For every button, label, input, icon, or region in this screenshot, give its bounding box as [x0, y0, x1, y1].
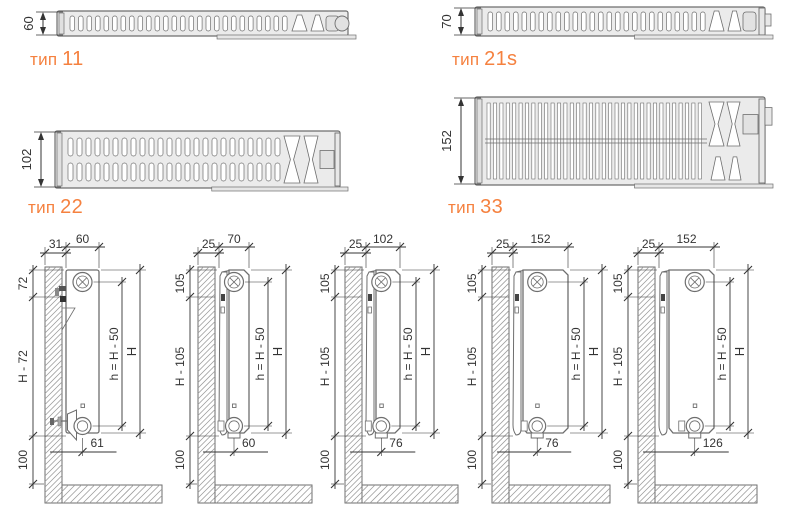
- section-label-11: тип 11: [30, 48, 84, 71]
- installation-diagram-5: 25152105H - 105100Hh = H - 50126: [611, 232, 757, 503]
- dim-label: H - 105: [465, 347, 479, 387]
- radiator-dimensions-figure: 6070102152316072H - 72100Hh = H - 506125…: [0, 0, 800, 506]
- dim-label: 25: [202, 237, 216, 251]
- dim-label: 152: [676, 232, 696, 246]
- dim-label: 72: [16, 277, 30, 291]
- dim-label: h = H - 50: [401, 327, 415, 380]
- dim-label: 100: [611, 450, 625, 470]
- technical-drawing: 6070102152316072H - 72100Hh = H - 506125…: [0, 0, 800, 506]
- dim-label: h = H - 50: [107, 327, 121, 380]
- type-number: 21s: [484, 48, 517, 70]
- dim-label: h = H - 50: [715, 327, 729, 380]
- dim-label: H - 72: [16, 350, 30, 383]
- dim-label: H: [270, 347, 285, 356]
- dim-label: 152: [530, 232, 550, 246]
- section-label-33: тип 33: [448, 196, 503, 219]
- section-label-21s: тип 21s: [452, 48, 517, 71]
- dim-label: 105: [173, 273, 187, 293]
- dim-label: 60: [242, 436, 256, 450]
- type-word: тип: [452, 50, 479, 69]
- dim-label: H: [586, 347, 601, 356]
- dim-label: 76: [389, 436, 403, 450]
- section-drawing-33: 152: [439, 97, 773, 188]
- installation-diagram-2: 2570105H - 105100Hh = H - 5060: [173, 232, 312, 503]
- floor: [509, 485, 610, 503]
- dim-label: 60: [21, 16, 36, 30]
- dim-label: H: [124, 347, 139, 356]
- section-drawing-22: 102: [19, 131, 348, 191]
- dim-label: 126: [703, 436, 723, 450]
- dim-label: 100: [16, 450, 30, 470]
- dim-label: 25: [642, 237, 656, 251]
- dim-label: 70: [227, 232, 241, 246]
- section-drawing-11: 60: [21, 11, 356, 39]
- dim-label: H - 105: [318, 347, 332, 387]
- dim-label: H - 105: [173, 347, 187, 387]
- type-number: 33: [480, 196, 503, 218]
- dim-label: 100: [173, 450, 187, 470]
- dim-label: 60: [76, 232, 90, 246]
- radiator-body: [66, 270, 99, 433]
- radiator-body: [229, 270, 249, 433]
- dim-label: 76: [545, 436, 559, 450]
- dim-label: H: [732, 347, 747, 356]
- type-word: тип: [28, 198, 55, 217]
- dim-label: 102: [19, 149, 34, 171]
- dim-label: 102: [373, 232, 393, 246]
- dim-label: 100: [318, 450, 332, 470]
- radiator-body: [376, 270, 400, 433]
- radiator-body: [669, 270, 714, 433]
- installation-diagram-4: 25152105H - 105100Hh = H - 5076: [465, 232, 610, 503]
- dim-label: h = H - 50: [569, 327, 583, 380]
- section-label-22: тип 22: [28, 196, 83, 219]
- dim-label: 31: [49, 237, 63, 251]
- dim-label: 25: [349, 237, 363, 251]
- dim-label: h = H - 50: [253, 327, 267, 380]
- dim-label: 152: [439, 130, 454, 152]
- section-drawing-21s: 70: [439, 7, 773, 39]
- dim-label: 105: [611, 273, 625, 293]
- dim-label: 61: [91, 436, 105, 450]
- dim-label: 25: [496, 237, 510, 251]
- type-word: тип: [30, 50, 57, 69]
- radiator-body: [523, 270, 568, 433]
- floor: [655, 485, 757, 503]
- dim-label: 100: [465, 450, 479, 470]
- dim-label: 70: [439, 14, 454, 28]
- type-word: тип: [448, 198, 475, 217]
- installation-diagram-3: 25102105H - 105100Hh = H - 5076: [318, 232, 458, 503]
- installation-diagram-1: 316072H - 72100Hh = H - 5061: [16, 232, 162, 503]
- type-number: 22: [60, 196, 83, 218]
- dim-label: 105: [465, 273, 479, 293]
- dim-label: H: [418, 347, 433, 356]
- type-number: 11: [62, 48, 83, 70]
- dim-label: 105: [318, 273, 332, 293]
- dim-label: H - 105: [611, 347, 625, 387]
